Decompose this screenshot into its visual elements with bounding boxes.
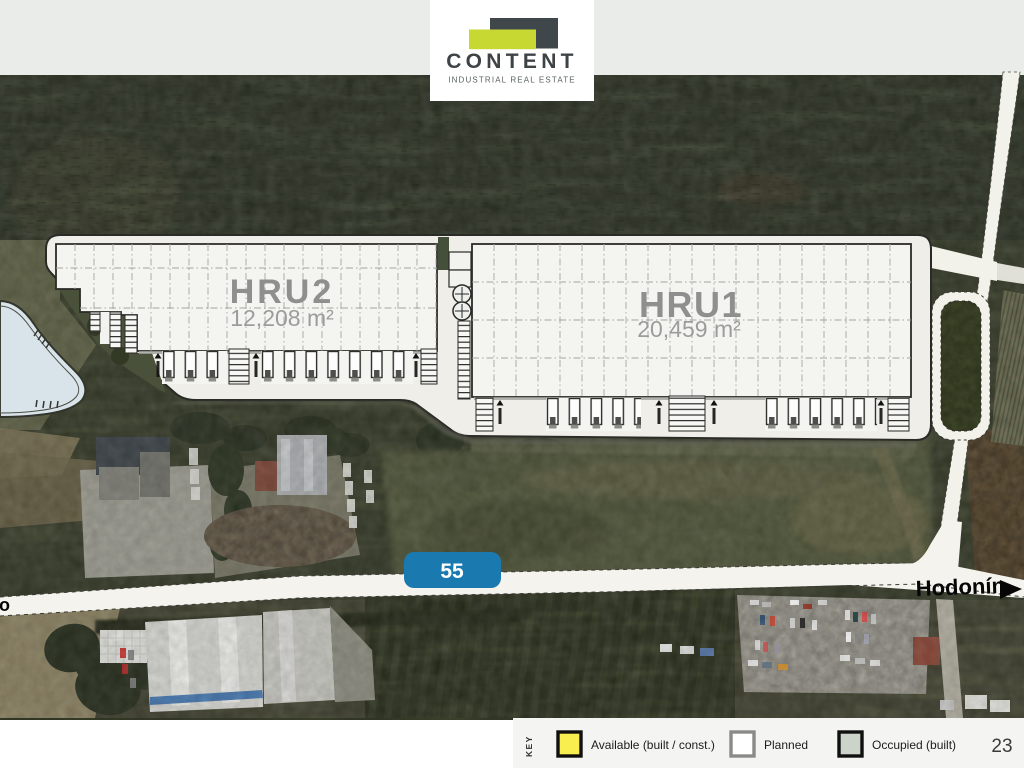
svg-text:KEY: KEY xyxy=(524,735,534,757)
svg-text:23: 23 xyxy=(991,736,1012,757)
svg-text:20,459 m²: 20,459 m² xyxy=(637,316,741,342)
svg-text:Occupied (built): Occupied (built) xyxy=(872,738,956,752)
svg-text:Available (built / const.): Available (built / const.) xyxy=(591,738,715,752)
svg-text:55: 55 xyxy=(440,560,464,583)
svg-text:CONTENT: CONTENT xyxy=(446,50,578,73)
svg-text:Planned: Planned xyxy=(764,738,808,752)
svg-text:12,208 m²: 12,208 m² xyxy=(230,305,334,331)
svg-text:o: o xyxy=(0,595,10,615)
svg-text:Hodonín: Hodonín xyxy=(915,573,1005,601)
svg-text:INDUSTRIAL REAL ESTATE: INDUSTRIAL REAL ESTATE xyxy=(448,76,576,85)
